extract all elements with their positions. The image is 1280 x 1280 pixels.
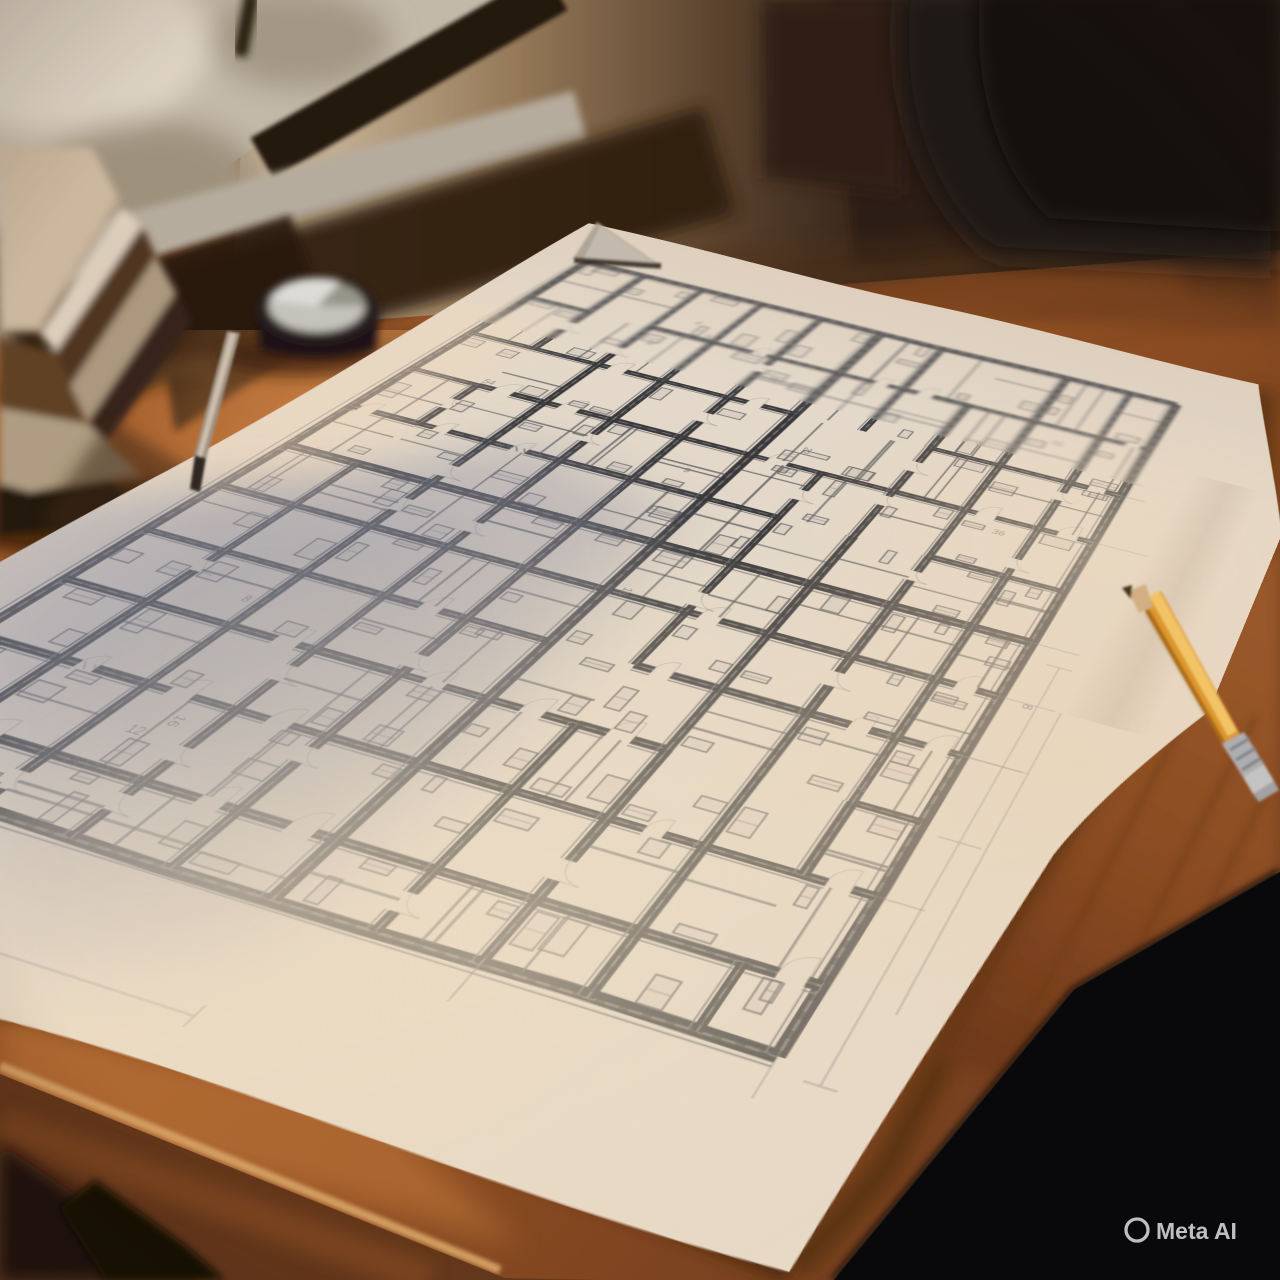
- svg-text:Meta AI: Meta AI: [1156, 1218, 1237, 1244]
